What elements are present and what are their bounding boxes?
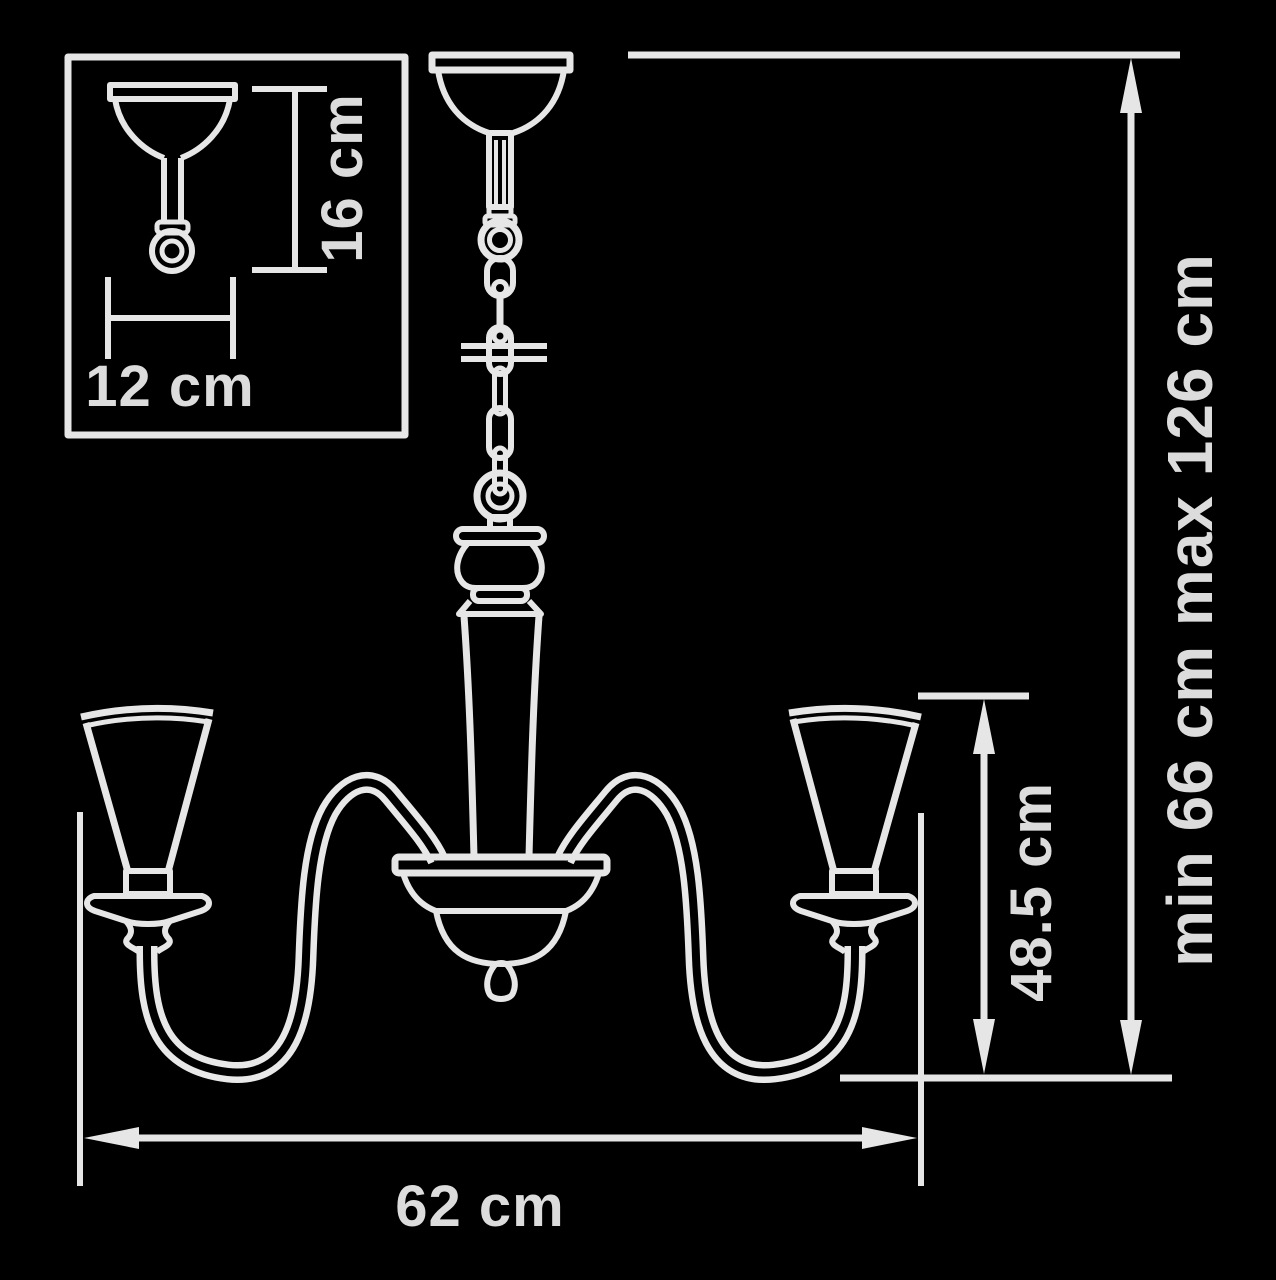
mount-width-dimension-line	[108, 277, 233, 359]
shade-collar	[832, 871, 876, 894]
mini-canopy-stem	[164, 158, 181, 222]
canopy-stem-inner-lines	[496, 140, 504, 205]
arrow-right-icon	[862, 1127, 917, 1149]
mount-height-label: 16 cm	[310, 93, 375, 262]
bowl-sides	[403, 873, 599, 911]
body-height-label: 48.5 cm	[999, 782, 1064, 1002]
dimension-mount-width: 12 cm	[85, 277, 254, 419]
bowl-plate	[395, 857, 607, 873]
arrow-up-icon	[1120, 58, 1142, 113]
chandelier-dimension-diagram: min 66 cm max 126 cm 48.5 cm 62 cm	[0, 0, 1276, 1280]
left-arm-core	[147, 782, 438, 1072]
shade-cone	[793, 719, 916, 872]
right-arm-core	[564, 782, 855, 1072]
overall-height-label: min 66 cm max 126 cm	[1154, 253, 1226, 967]
ceiling-mount-inset: 16 cm 12 cm	[68, 57, 405, 435]
chandelier-arms	[147, 782, 855, 1072]
shade-collar	[126, 871, 170, 894]
arrow-down-icon	[1120, 1020, 1142, 1075]
mount-width-label: 12 cm	[85, 354, 254, 419]
body-width-label: 62 cm	[395, 1174, 564, 1239]
mini-canopy-bell	[115, 99, 230, 158]
bowl-finial-drop	[487, 963, 515, 999]
column-bulge	[457, 543, 542, 588]
center-bowl	[395, 857, 607, 999]
dimension-overall-height: min 66 cm max 126 cm	[628, 55, 1226, 1078]
chain-break-marks	[461, 346, 547, 359]
arrow-left-icon	[84, 1127, 139, 1149]
shade-rim-inner	[793, 718, 917, 726]
mini-canopy-plate	[110, 85, 235, 99]
bobeche	[87, 896, 209, 924]
shade-rim-inner	[85, 718, 209, 726]
column-ring	[473, 588, 527, 601]
column-taper	[464, 616, 539, 857]
mini-hook-ring	[152, 231, 192, 271]
arrow-up-icon	[973, 699, 995, 754]
link-knob	[494, 282, 507, 295]
swivel-ball-hole	[490, 230, 511, 251]
shade-cone	[86, 719, 209, 872]
dimension-mount-height: 16 cm	[252, 89, 375, 270]
link-knob	[494, 330, 506, 342]
canopy-bell	[438, 70, 564, 133]
canopy-plate	[432, 55, 570, 70]
bobeche	[793, 896, 915, 924]
ceiling-canopy	[432, 55, 570, 207]
column-disc	[456, 529, 544, 543]
central-column	[456, 517, 544, 857]
dimension-body-height: 48.5 cm	[918, 696, 1064, 1074]
canopy-stem	[489, 133, 511, 207]
bowl-bottom	[436, 911, 566, 964]
right-shade-assembly	[789, 708, 921, 952]
mini-hook-ring-hole	[162, 241, 182, 261]
hanging-chain	[461, 207, 547, 519]
left-shade-assembly	[81, 708, 213, 952]
chain-link	[487, 258, 513, 296]
arrow-down-icon	[973, 1019, 995, 1074]
